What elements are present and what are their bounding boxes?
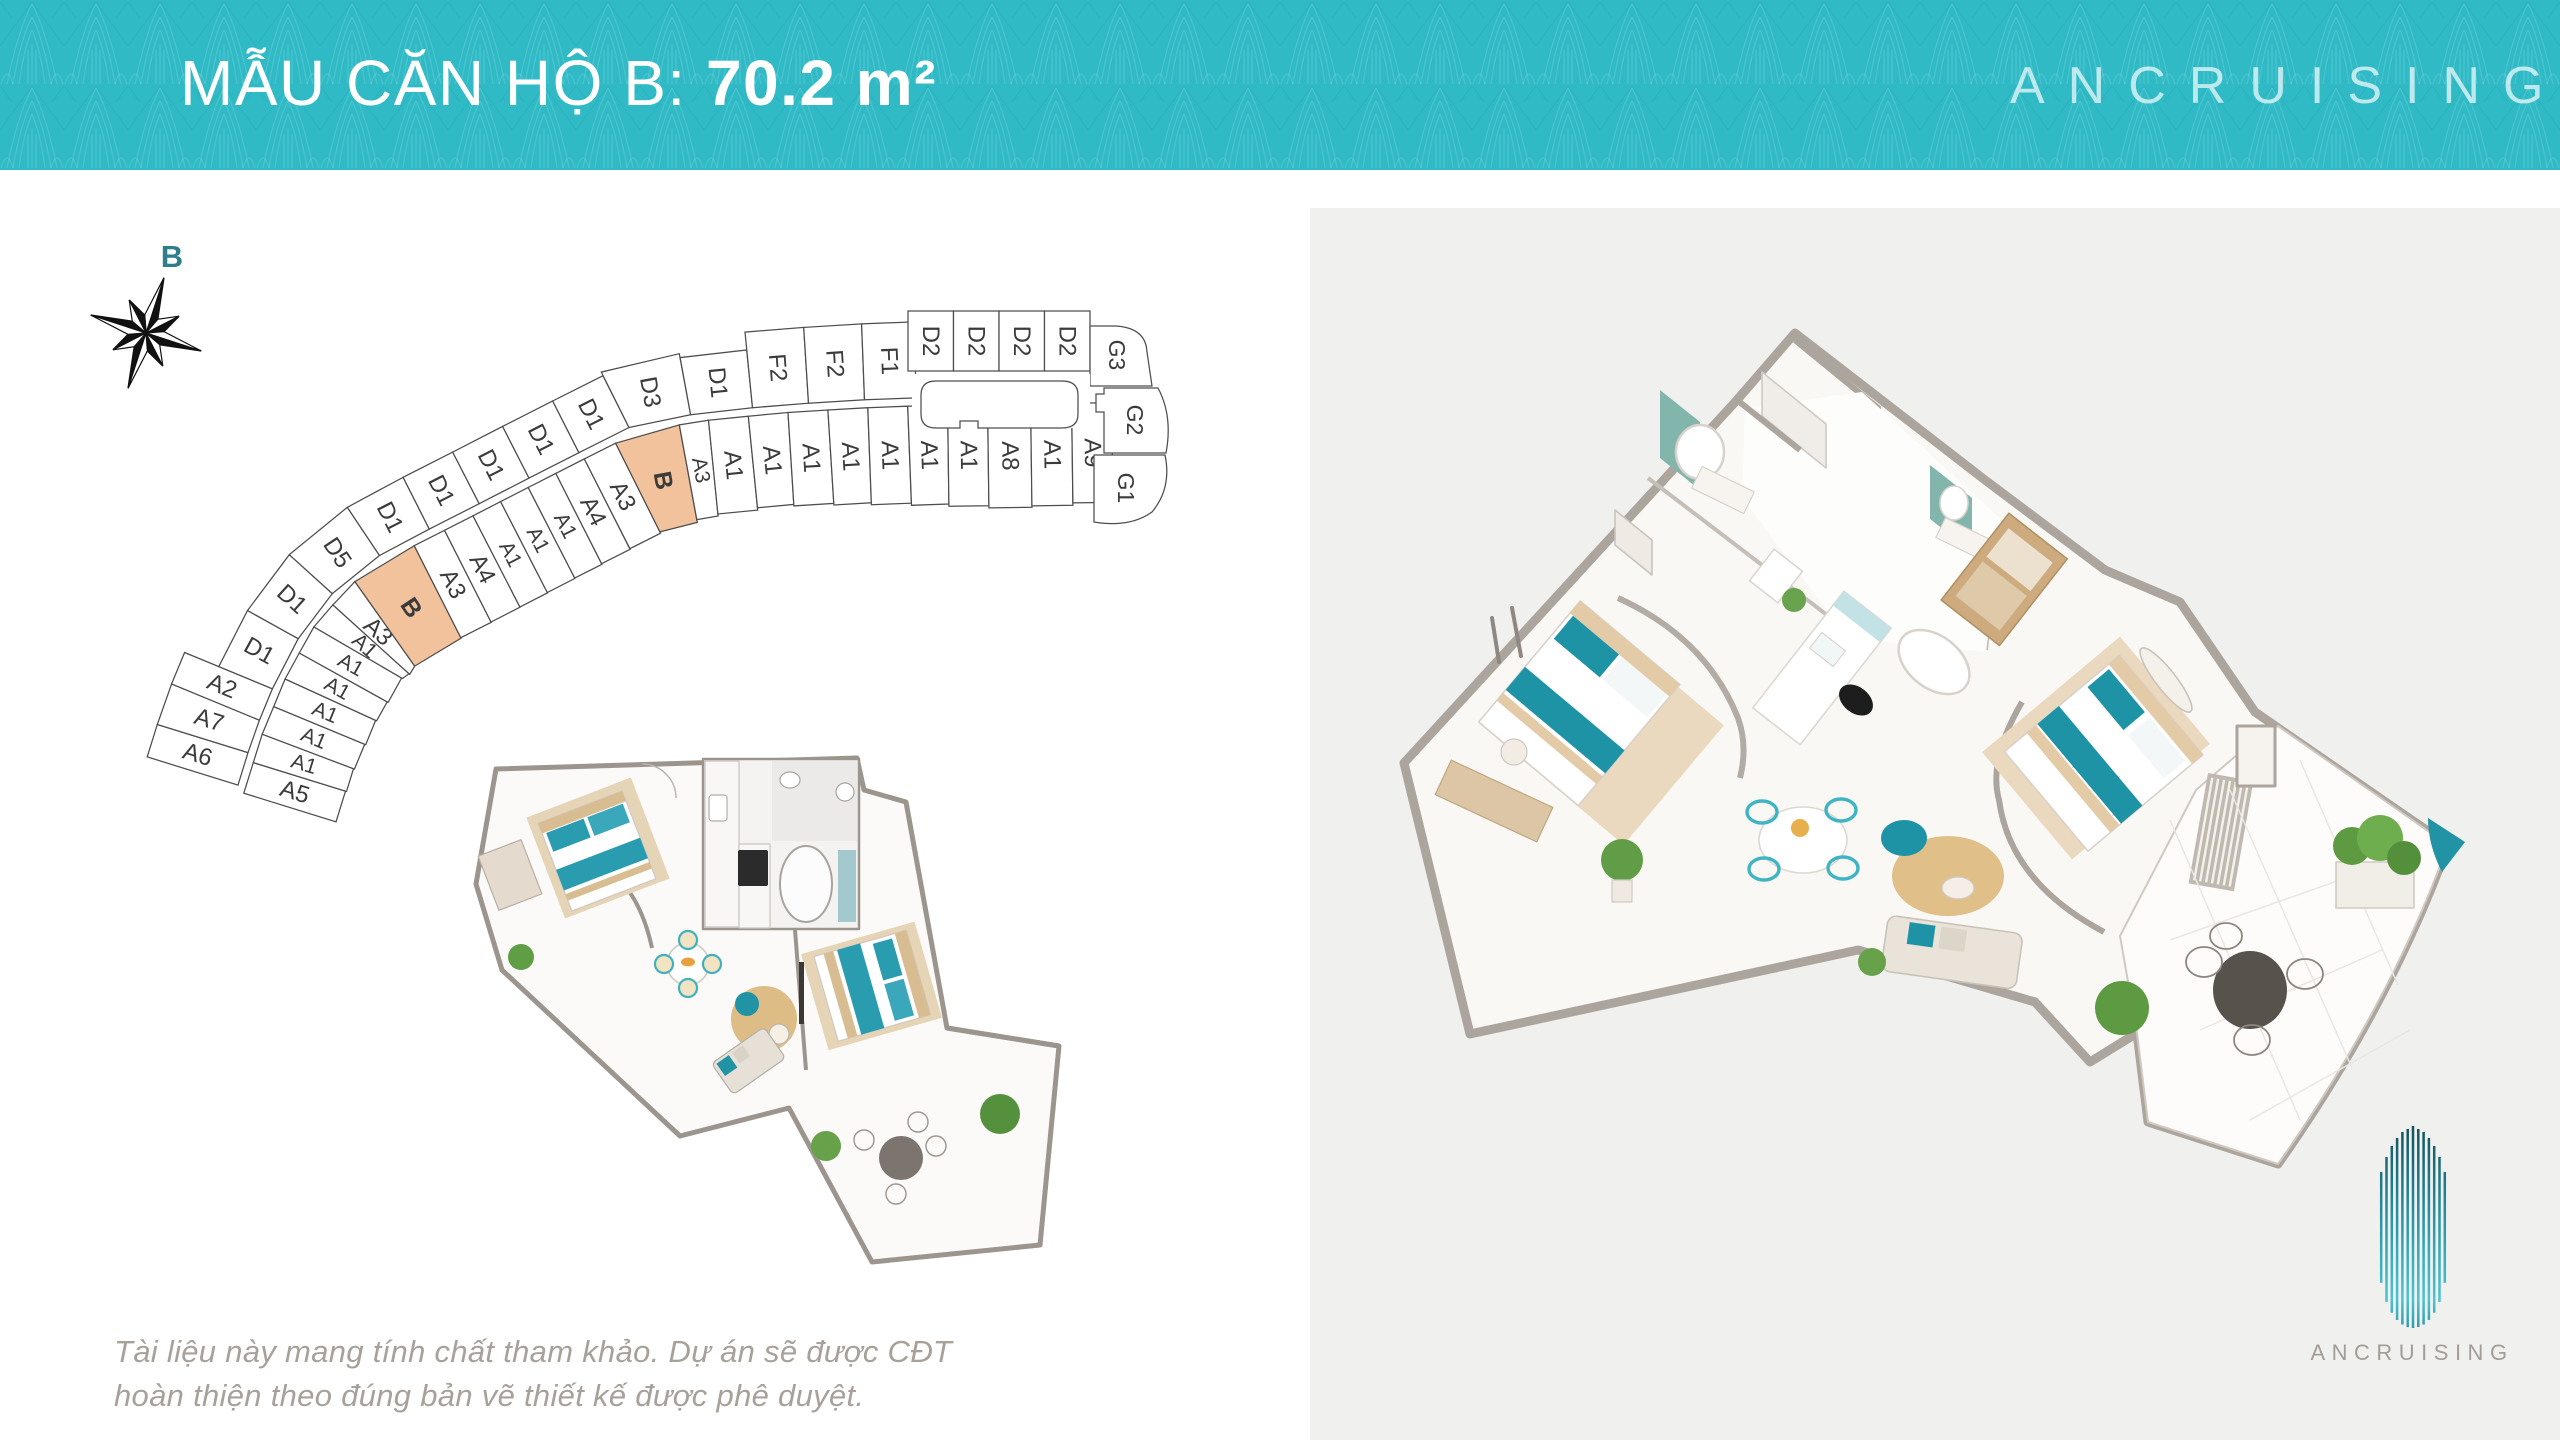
svg-text:D2: D2	[917, 326, 944, 357]
svg-text:D2: D2	[963, 326, 990, 357]
svg-text:A1: A1	[915, 440, 943, 470]
svg-text:D1: D1	[703, 366, 733, 399]
svg-text:A1: A1	[757, 444, 787, 476]
svg-text:D2: D2	[1008, 326, 1035, 357]
svg-text:G2: G2	[1122, 405, 1148, 436]
svg-text:F2: F2	[763, 353, 792, 383]
svg-text:A1: A1	[876, 440, 904, 470]
svg-text:B: B	[161, 239, 183, 274]
svg-text:A1: A1	[1038, 440, 1065, 470]
svg-text:G3: G3	[1104, 340, 1130, 371]
svg-text:G1: G1	[1113, 473, 1139, 504]
svg-text:A1: A1	[836, 441, 865, 472]
svg-text:ANCRUISING: ANCRUISING	[2310, 1340, 2513, 1365]
svg-text:A8: A8	[996, 441, 1023, 471]
svg-text:A1: A1	[718, 449, 748, 481]
svg-text:A3: A3	[687, 455, 714, 484]
svg-text:A1: A1	[797, 442, 826, 473]
svg-text:F2: F2	[820, 349, 849, 379]
svg-text:D2: D2	[1054, 326, 1081, 357]
svg-text:F1: F1	[875, 346, 903, 375]
svg-text:A1: A1	[955, 440, 982, 470]
svg-text:D3: D3	[634, 374, 666, 409]
